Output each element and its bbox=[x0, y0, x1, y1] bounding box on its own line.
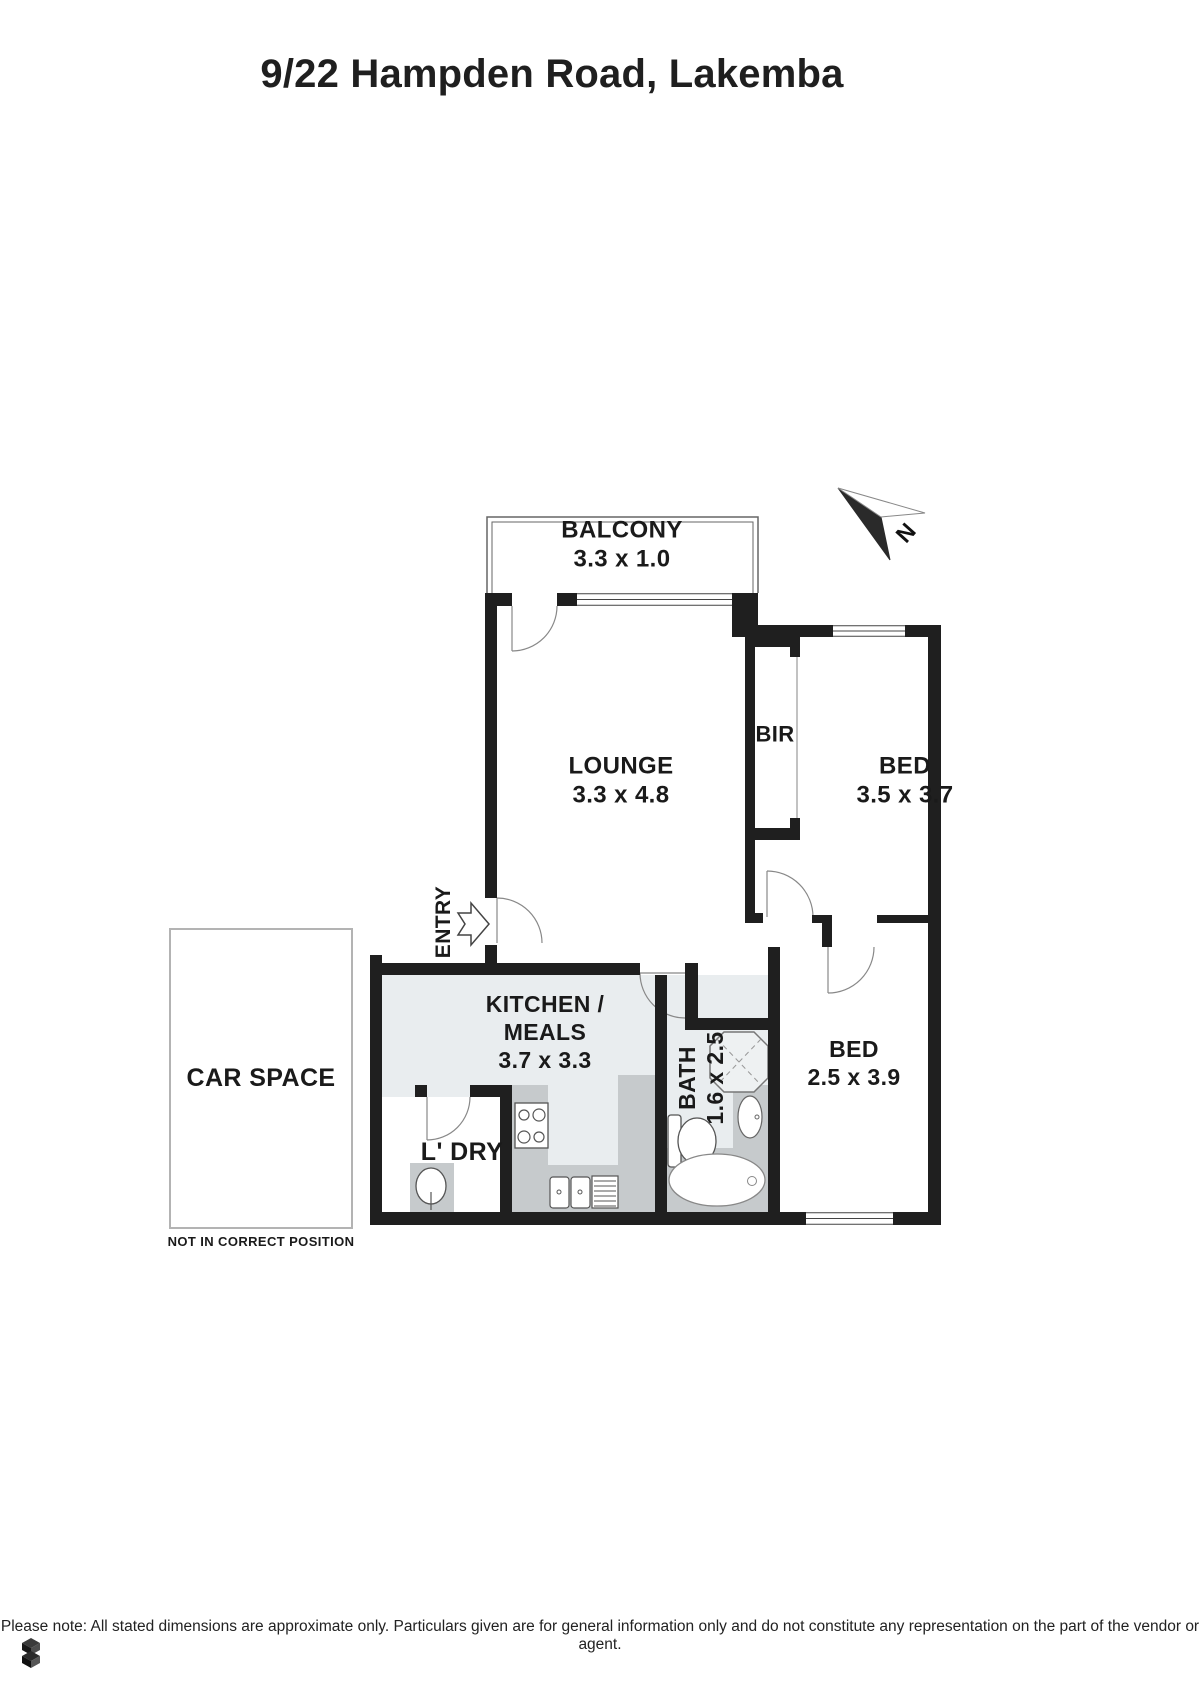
lounge-label-line: LOUNGE bbox=[568, 752, 673, 781]
kitchen-label: KITCHEN /MEALS3.7 x 3.3 bbox=[486, 990, 605, 1074]
sink-drain bbox=[578, 1190, 582, 1194]
wall bbox=[822, 915, 832, 947]
wall bbox=[790, 818, 800, 828]
window bbox=[577, 593, 732, 606]
wall bbox=[755, 635, 800, 647]
wall bbox=[370, 1212, 806, 1225]
stove-burner bbox=[533, 1109, 545, 1121]
bed1-label-line: 3.5 x 3.7 bbox=[856, 781, 953, 810]
kitchen-counter-right bbox=[618, 1075, 655, 1212]
wall bbox=[768, 947, 780, 1212]
entry-arrow bbox=[458, 903, 489, 945]
kitchen-label-line: MEALS bbox=[486, 1018, 605, 1046]
window bbox=[806, 1212, 893, 1225]
bath-label-line: BATH bbox=[673, 1031, 701, 1124]
wall bbox=[382, 963, 640, 975]
wall bbox=[557, 593, 577, 606]
bed2-label-line: 2.5 x 3.9 bbox=[807, 1063, 900, 1091]
kitchen-label-line: 3.7 x 3.3 bbox=[486, 1046, 605, 1074]
floorplan-page: 9/22 Hampden Road, Lakemba BALCONY3.3 x … bbox=[0, 0, 1200, 1704]
kitchen-label-line: KITCHEN / bbox=[486, 990, 605, 1018]
stove-burner bbox=[518, 1131, 530, 1143]
wall bbox=[790, 647, 800, 657]
entry-door-arc bbox=[497, 898, 542, 943]
wall bbox=[928, 625, 941, 1225]
wall bbox=[755, 828, 800, 840]
sink-drain bbox=[557, 1190, 561, 1194]
bed1-label: BED3.5 x 3.7 bbox=[856, 752, 953, 811]
laundry-label: L' DRY bbox=[421, 1137, 503, 1168]
stove-burner bbox=[534, 1132, 544, 1142]
entry-label-line: ENTRY bbox=[431, 886, 457, 958]
bed2-door-arc bbox=[828, 947, 874, 993]
bed1-door-arc bbox=[767, 871, 813, 917]
wall bbox=[415, 1085, 427, 1097]
carspace-label-line: CAR SPACE bbox=[187, 1063, 336, 1094]
wall bbox=[655, 975, 667, 1212]
carspace-label: CAR SPACE bbox=[187, 1063, 336, 1094]
bir-label-line: BIR bbox=[755, 722, 794, 749]
balcony-label-line: BALCONY bbox=[561, 516, 682, 545]
window bbox=[833, 625, 905, 637]
wall bbox=[745, 913, 763, 923]
bed1-label-line: BED bbox=[856, 752, 953, 781]
carspace-note-line: NOT IN CORRECT POSITION bbox=[168, 1234, 355, 1250]
wall bbox=[745, 606, 755, 913]
disclaimer-text: Please note: All stated dimensions are a… bbox=[0, 1618, 1200, 1654]
carspace-note: NOT IN CORRECT POSITION bbox=[168, 1234, 355, 1250]
balcony-label: BALCONY3.3 x 1.0 bbox=[561, 516, 682, 575]
laundry-label-line: L' DRY bbox=[421, 1137, 503, 1168]
lounge-label-line: 3.3 x 4.8 bbox=[568, 781, 673, 810]
wall bbox=[877, 915, 941, 923]
wall bbox=[370, 955, 382, 1225]
wall bbox=[485, 593, 497, 898]
wall bbox=[893, 1212, 941, 1225]
bath-label: BATH1.6 x 2.5 bbox=[673, 1031, 729, 1124]
stove-burner bbox=[519, 1110, 529, 1120]
bir-label: BIR bbox=[755, 722, 794, 749]
vanity-tap bbox=[755, 1115, 759, 1119]
bed2-label: BED2.5 x 3.9 bbox=[807, 1035, 900, 1091]
wall bbox=[692, 1018, 780, 1030]
bath-label-line: 1.6 x 2.5 bbox=[701, 1031, 729, 1124]
floor-plan bbox=[0, 0, 1200, 1704]
bed2-label-line: BED bbox=[807, 1035, 900, 1063]
balcony-label-line: 3.3 x 1.0 bbox=[561, 545, 682, 574]
balcony-door-arc bbox=[512, 606, 557, 651]
wall bbox=[812, 915, 822, 923]
bathtub-drain bbox=[748, 1177, 757, 1186]
entry-label: ENTRY bbox=[431, 886, 457, 958]
agency-logo-icon bbox=[21, 1638, 41, 1668]
lounge-label: LOUNGE3.3 x 4.8 bbox=[568, 752, 673, 811]
